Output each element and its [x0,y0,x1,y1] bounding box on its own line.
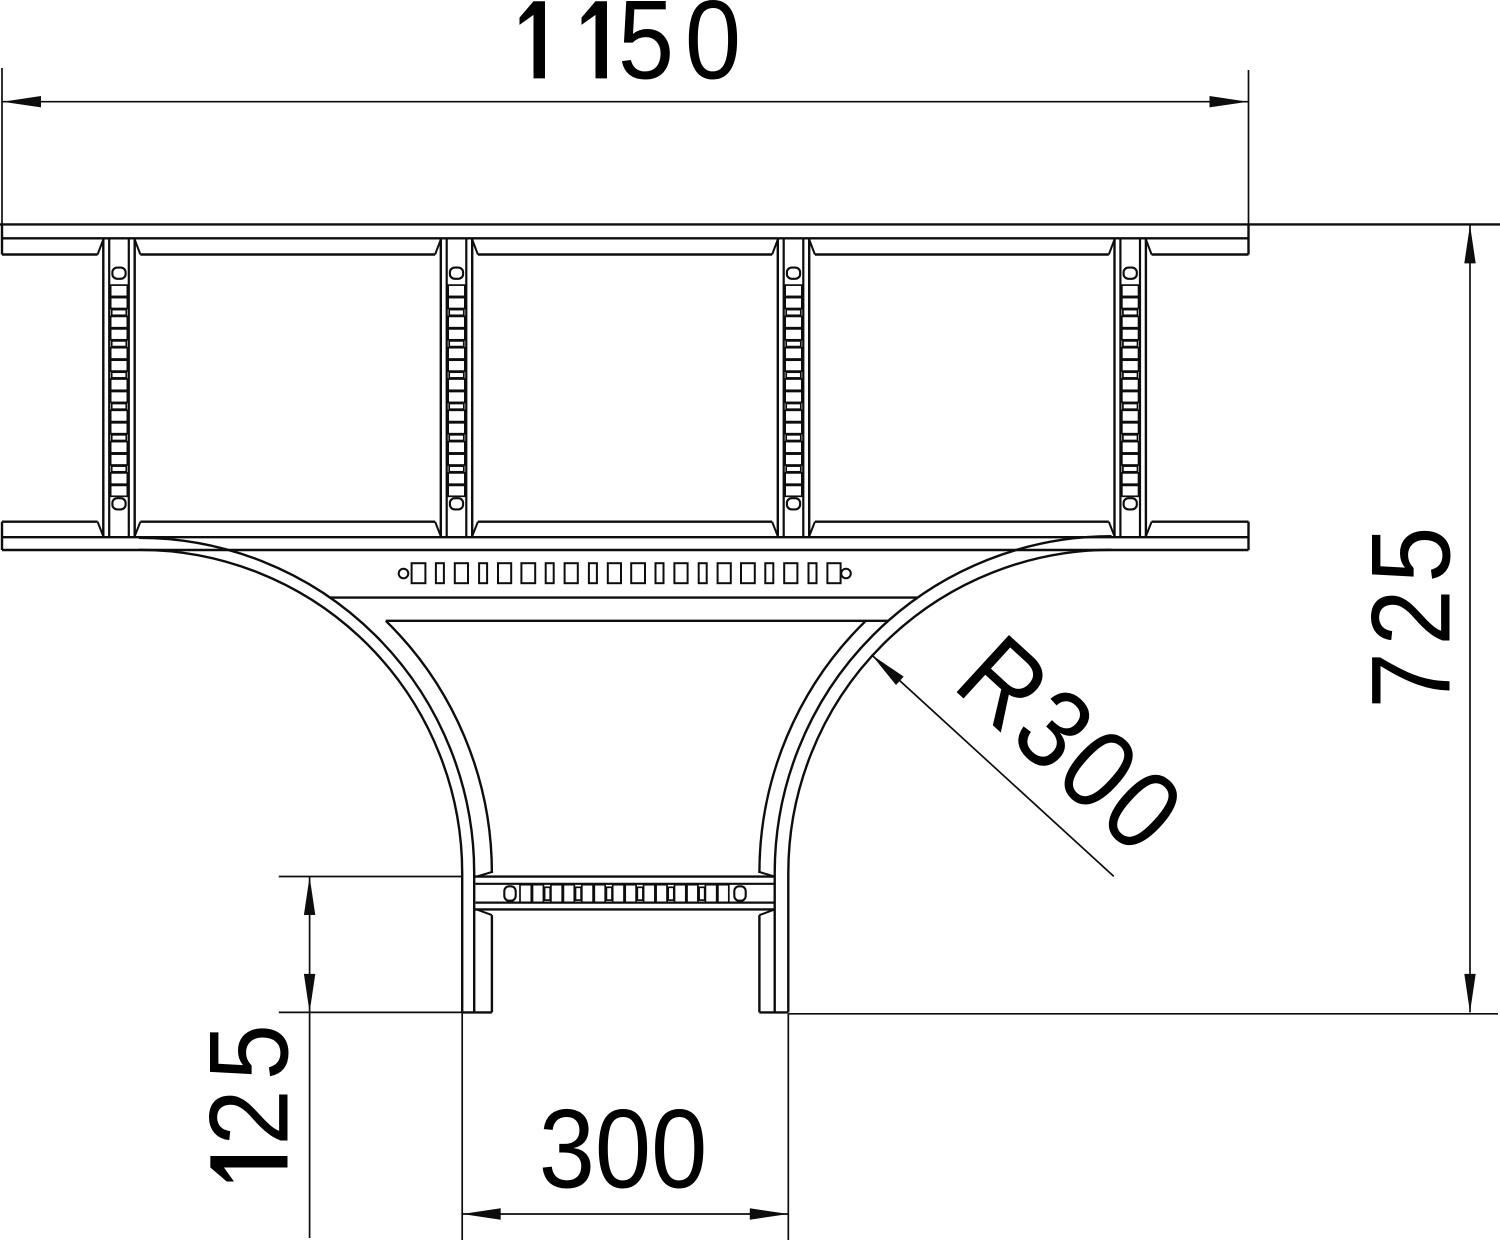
svg-text:5: 5 [618,0,674,103]
svg-text:300: 300 [539,1085,708,1211]
svg-text:725: 725 [1347,520,1473,709]
svg-text:5: 5 [185,1024,311,1080]
svg-text:2: 2 [185,1089,311,1145]
svg-text:0: 0 [685,0,741,103]
